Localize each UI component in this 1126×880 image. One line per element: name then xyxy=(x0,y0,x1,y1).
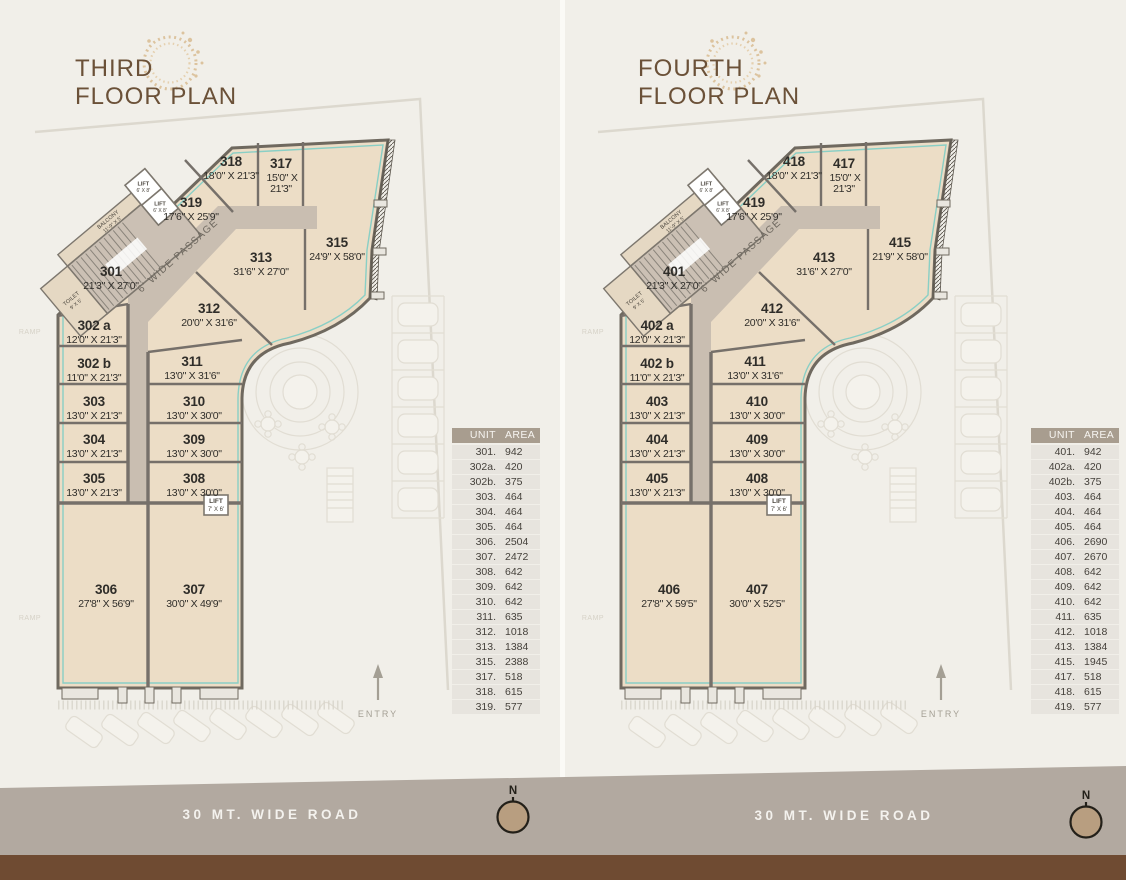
unit-number: 302 a xyxy=(78,318,111,333)
area-column-header: AREA xyxy=(496,428,535,443)
car-icon xyxy=(961,303,1001,326)
corridor-shape xyxy=(128,320,148,503)
service-lift-label-line2: 7' X 6' xyxy=(771,507,787,513)
unit-number: 303 xyxy=(83,394,106,409)
table-row: 402b. 375 xyxy=(1031,475,1119,489)
edge-tab xyxy=(934,292,947,299)
unit-number: 418 xyxy=(783,154,806,169)
unit-number: 410 xyxy=(746,394,768,409)
table-row: 305. 464 xyxy=(452,520,540,534)
unit-dims: 13'0" X 31'6" xyxy=(164,370,220,382)
unit-number: 417 xyxy=(833,156,855,171)
area-cell: 942 xyxy=(496,445,523,459)
car-icon xyxy=(398,377,438,400)
unit-dims: 31'6" X 27'0" xyxy=(233,266,289,278)
unit-cell: 415. xyxy=(1031,655,1075,669)
unit-dims: 27'8" X 59'5" xyxy=(641,598,697,610)
unit-number: 315 xyxy=(326,235,349,250)
area-cell: 1018 xyxy=(496,625,528,639)
table-body: 301. 942 302a. 420 302b. 375 303. 464 30… xyxy=(452,445,540,714)
car-icon xyxy=(961,377,1001,400)
unit-cell: 417. xyxy=(1031,670,1075,684)
edge-tab xyxy=(937,200,950,207)
area-cell: 642 xyxy=(496,595,523,609)
table-row: 303. 464 xyxy=(452,490,540,504)
unit-dims: 13'0" X 31'6" xyxy=(727,370,783,382)
road-band-area: 30 MT. WIDE ROAD 30 MT. WIDE ROAD N N xyxy=(0,690,1126,880)
table-row: 315. 2388 xyxy=(452,655,540,669)
unit-dims: 20'0" X 31'6" xyxy=(744,317,800,329)
unit-dims: 13'0" X 21'3" xyxy=(66,448,122,460)
table-row: 312. 1018 xyxy=(452,625,540,639)
lift2-label-line1: LIFT xyxy=(717,201,729,207)
unit-number: 304 xyxy=(83,432,106,447)
table-row: 307. 2472 xyxy=(452,550,540,564)
unit-number: 412 xyxy=(761,301,783,316)
area-cell: 642 xyxy=(496,565,523,579)
unit-number: 302 b xyxy=(77,356,111,371)
ramp-label-upper: RAMP xyxy=(19,329,41,336)
unit-number: 406 xyxy=(658,582,681,597)
unit-dims: 30'0" X 52'5" xyxy=(729,598,785,610)
table-row: 405. 464 xyxy=(1031,520,1119,534)
unit-dims: 11'0" X 21'3" xyxy=(67,372,122,384)
unit-number: 319 xyxy=(180,195,202,210)
unit-dims: 13'0" X 30'0" xyxy=(729,448,785,460)
unit-dims: 27'8" X 56'9" xyxy=(78,598,134,610)
lift1-label-line1: LIFT xyxy=(700,181,712,187)
unit-number: 309 xyxy=(183,432,205,447)
unit-number: 318 xyxy=(220,154,243,169)
table-row: 317. 518 xyxy=(452,670,540,684)
unit-dims: 13'0" X 30'0" xyxy=(729,410,785,422)
area-cell: 375 xyxy=(496,475,523,489)
car-icon xyxy=(961,488,1001,511)
table-row: 402a. 420 xyxy=(1031,460,1119,474)
unit-dims: 21'3" xyxy=(270,183,292,195)
area-cell: 2690 xyxy=(1075,535,1107,549)
table-row: 310. 642 xyxy=(452,595,540,609)
unit-dims: 13'0" X 21'3" xyxy=(629,487,685,499)
area-cell: 464 xyxy=(1075,490,1102,504)
unit-number: 307 xyxy=(183,582,205,597)
unit-cell: 310. xyxy=(452,595,496,609)
unit-cell: 403. xyxy=(1031,490,1075,504)
unit-dims: 13'0" X 30'0" xyxy=(166,448,222,460)
courtyard xyxy=(805,334,921,522)
area-cell: 1945 xyxy=(1075,655,1107,669)
unit-dims: 31'6" X 27'0" xyxy=(796,266,852,278)
unit-dims: 11'0" X 21'3" xyxy=(630,372,685,384)
area-cell: 464 xyxy=(1075,520,1102,534)
unit-dims: 20'0" X 31'6" xyxy=(181,317,237,329)
unit-number: 317 xyxy=(270,156,292,171)
floor-title-line1: THIRD xyxy=(75,55,153,82)
unit-cell: 309. xyxy=(452,580,496,594)
unit-cell: 402a. xyxy=(1031,460,1075,474)
unit-number: 419 xyxy=(743,195,765,210)
unit-cell: 412. xyxy=(1031,625,1075,639)
area-cell: 375 xyxy=(1075,475,1102,489)
unit-dims: 17'6" X 25'9" xyxy=(163,211,219,223)
compass-north-label: N xyxy=(509,785,517,797)
table-row: 306. 2504 xyxy=(452,535,540,549)
table-row: 311. 635 xyxy=(452,610,540,624)
edge-tab xyxy=(374,200,387,207)
floor-title-line2: FLOOR PLAN xyxy=(75,83,237,110)
area-cell: 2670 xyxy=(1075,550,1107,564)
unit-number: 415 xyxy=(889,235,912,250)
lift1-label-line1: LIFT xyxy=(137,181,149,187)
area-cell: 464 xyxy=(1075,505,1102,519)
bottom-band xyxy=(0,855,1126,880)
unit-dims: 13'0" X 21'3" xyxy=(629,410,685,422)
car-icon xyxy=(398,414,438,437)
table-row: 302b. 375 xyxy=(452,475,540,489)
table-row: 304. 464 xyxy=(452,505,540,519)
car-icon xyxy=(398,488,438,511)
unit-number: 311 xyxy=(181,354,203,369)
unit-dims: 13'0" X 21'3" xyxy=(66,410,122,422)
entry-arrowhead-icon xyxy=(373,664,383,678)
ramp-label-lower: RAMP xyxy=(582,615,604,622)
car-icon xyxy=(398,340,438,363)
unit-dims: 13'0" X 30'0" xyxy=(166,487,222,499)
unit-dims: 17'6" X 25'9" xyxy=(726,211,782,223)
car-icon xyxy=(961,414,1001,437)
area-cell: 1384 xyxy=(1075,640,1107,654)
table-header: UNIT AREA xyxy=(452,428,540,443)
unit-number: 405 xyxy=(646,471,669,486)
table-row: 408. 642 xyxy=(1031,565,1119,579)
unit-number: 313 xyxy=(250,250,273,265)
table-row: 413. 1384 xyxy=(1031,640,1119,654)
unit-number: 312 xyxy=(198,301,220,316)
car-icon xyxy=(961,451,1001,474)
area-cell: 464 xyxy=(496,490,523,504)
area-cell: 1384 xyxy=(496,640,528,654)
unit-cell: 407. xyxy=(1031,550,1075,564)
table-row: 406. 2690 xyxy=(1031,535,1119,549)
unit-cell: 405. xyxy=(1031,520,1075,534)
unit-cell: 313. xyxy=(452,640,496,654)
area-cell: 1018 xyxy=(1075,625,1107,639)
table-row: 401. 942 xyxy=(1031,445,1119,459)
lift1-label-line2: 6' X 8' xyxy=(136,188,150,194)
unit-cell: 413. xyxy=(1031,640,1075,654)
unit-cell: 301. xyxy=(452,445,496,459)
unit-cell: 302a. xyxy=(452,460,496,474)
unit-cell: 306. xyxy=(452,535,496,549)
unit-area-table: UNIT AREA 301. 942 302a. 420 302b. 375 3… xyxy=(452,428,540,715)
unit-cell: 307. xyxy=(452,550,496,564)
table-row: 404. 464 xyxy=(1031,505,1119,519)
area-cell: 518 xyxy=(496,670,523,684)
unit-dims: 24'9" X 58'0" xyxy=(309,251,365,263)
unit-number: 301 xyxy=(100,264,123,279)
unit-dims: 12'0" X 21'3" xyxy=(66,334,122,346)
page-root: RAMP RAMP THIRD FLOOR PLAN xyxy=(0,0,1126,880)
unit-dims: 18'0" X 21'3" xyxy=(203,170,259,182)
unit-cell: 401. xyxy=(1031,445,1075,459)
area-cell: 2472 xyxy=(496,550,528,564)
unit-number: 413 xyxy=(813,250,836,265)
table-row: 403. 464 xyxy=(1031,490,1119,504)
unit-number: 310 xyxy=(183,394,205,409)
area-cell: 464 xyxy=(496,505,523,519)
edge-tab xyxy=(373,248,386,255)
unit-column-header: UNIT xyxy=(1031,428,1075,443)
area-cell: 635 xyxy=(496,610,523,624)
area-cell: 2388 xyxy=(496,655,528,669)
unit-dims: 21'3" xyxy=(833,183,855,195)
unit-cell: 312. xyxy=(452,625,496,639)
unit-dims: 30'0" X 49'9" xyxy=(166,598,222,610)
unit-number: 411 xyxy=(744,354,766,369)
unit-number: 401 xyxy=(663,264,686,279)
cafe-table-icon xyxy=(319,414,345,440)
unit-cell: 311. xyxy=(452,610,496,624)
unit-dims: 21'3" X 27'0" xyxy=(646,280,702,292)
unit-dims: 13'0" X 30'0" xyxy=(729,487,785,499)
unit-number: 407 xyxy=(746,582,768,597)
table-row: 415. 1945 xyxy=(1031,655,1119,669)
area-cell: 420 xyxy=(496,460,523,474)
corridor-shape xyxy=(691,320,711,503)
unit-number: 306 xyxy=(95,582,118,597)
courtyard xyxy=(242,334,358,522)
unit-dims: 12'0" X 21'3" xyxy=(629,334,685,346)
unit-cell: 406. xyxy=(1031,535,1075,549)
lift1-label-line2: 6' X 8' xyxy=(699,188,713,194)
table-row: 409. 642 xyxy=(1031,580,1119,594)
table-row: 308. 642 xyxy=(452,565,540,579)
area-cell: 942 xyxy=(1075,445,1102,459)
unit-cell: 302b. xyxy=(452,475,496,489)
car-icon xyxy=(398,303,438,326)
table-row: 313. 1384 xyxy=(452,640,540,654)
area-cell: 642 xyxy=(496,580,523,594)
cafe-table-icon xyxy=(852,444,878,470)
car-icon xyxy=(961,340,1001,363)
table-row: 412. 1018 xyxy=(1031,625,1119,639)
unit-number: 403 xyxy=(646,394,669,409)
unit-cell: 404. xyxy=(1031,505,1075,519)
unit-number: 404 xyxy=(646,432,669,447)
table-row: 301. 942 xyxy=(452,445,540,459)
table-row: 417. 518 xyxy=(1031,670,1119,684)
unit-cell: 402b. xyxy=(1031,475,1075,489)
unit-dims: 18'0" X 21'3" xyxy=(766,170,822,182)
unit-number: 308 xyxy=(183,471,206,486)
area-cell: 518 xyxy=(1075,670,1102,684)
unit-dims: 13'0" X 30'0" xyxy=(166,410,222,422)
cafe-table-icon xyxy=(289,444,315,470)
unit-cell: 409. xyxy=(1031,580,1075,594)
unit-dims: 21'9" X 58'0" xyxy=(872,251,928,263)
floor-title-line2: FLOOR PLAN xyxy=(638,83,800,110)
unit-cell: 305. xyxy=(452,520,496,534)
service-lift-label-line1: LIFT xyxy=(209,498,223,505)
unit-number: 408 xyxy=(746,471,769,486)
area-cell: 642 xyxy=(1075,580,1102,594)
unit-cell: 411. xyxy=(1031,610,1075,624)
table-row: 411. 635 xyxy=(1031,610,1119,624)
unit-dims: 13'0" X 21'3" xyxy=(629,448,685,460)
compass-north-label: N xyxy=(1082,790,1090,802)
unit-number: 402 b xyxy=(640,356,674,371)
road-band xyxy=(0,766,1126,855)
floor-title-line1: FOURTH xyxy=(638,55,744,82)
unit-dims: 21'3" X 27'0" xyxy=(83,280,139,292)
car-icon xyxy=(398,451,438,474)
area-cell: 642 xyxy=(1075,565,1102,579)
edge-tab xyxy=(936,248,949,255)
ramp-label-lower: RAMP xyxy=(19,615,41,622)
table-header: UNIT AREA xyxy=(1031,428,1119,443)
road-label-third: 30 MT. WIDE ROAD xyxy=(182,807,361,822)
parking-column xyxy=(392,296,444,518)
area-cell: 464 xyxy=(496,520,523,534)
unit-number: 409 xyxy=(746,432,768,447)
area-column-header: AREA xyxy=(1075,428,1114,443)
cafe-table-icon xyxy=(882,414,908,440)
table-row: 309. 642 xyxy=(452,580,540,594)
unit-cell: 408. xyxy=(1031,565,1075,579)
table-row: 410. 642 xyxy=(1031,595,1119,609)
table-row: 302a. 420 xyxy=(452,460,540,474)
unit-cell: 303. xyxy=(452,490,496,504)
parking-column xyxy=(955,296,1007,518)
unit-area-table: UNIT AREA 401. 942 402a. 420 402b. 375 4… xyxy=(1031,428,1119,715)
unit-dims: 13'0" X 21'3" xyxy=(66,487,122,499)
unit-cell: 304. xyxy=(452,505,496,519)
area-cell: 642 xyxy=(1075,595,1102,609)
unit-cell: 308. xyxy=(452,565,496,579)
lift2-label-line1: LIFT xyxy=(154,201,166,207)
service-lift-label-line1: LIFT xyxy=(772,498,786,505)
road-label-fourth: 30 MT. WIDE ROAD xyxy=(754,808,933,823)
area-cell: 635 xyxy=(1075,610,1102,624)
unit-cell: 317. xyxy=(452,670,496,684)
table-row: 407. 2670 xyxy=(1031,550,1119,564)
unit-number: 402 a xyxy=(641,318,674,333)
unit-cell: 410. xyxy=(1031,595,1075,609)
ramp-label-upper: RAMP xyxy=(582,329,604,336)
area-cell: 2504 xyxy=(496,535,528,549)
entry-arrowhead-icon xyxy=(936,664,946,678)
area-cell: 420 xyxy=(1075,460,1102,474)
edge-tab xyxy=(371,292,384,299)
table-body: 401. 942 402a. 420 402b. 375 403. 464 40… xyxy=(1031,445,1119,714)
unit-cell: 315. xyxy=(452,655,496,669)
service-lift-label-line2: 7' X 6' xyxy=(208,507,224,513)
unit-number: 305 xyxy=(83,471,106,486)
unit-column-header: UNIT xyxy=(452,428,496,443)
